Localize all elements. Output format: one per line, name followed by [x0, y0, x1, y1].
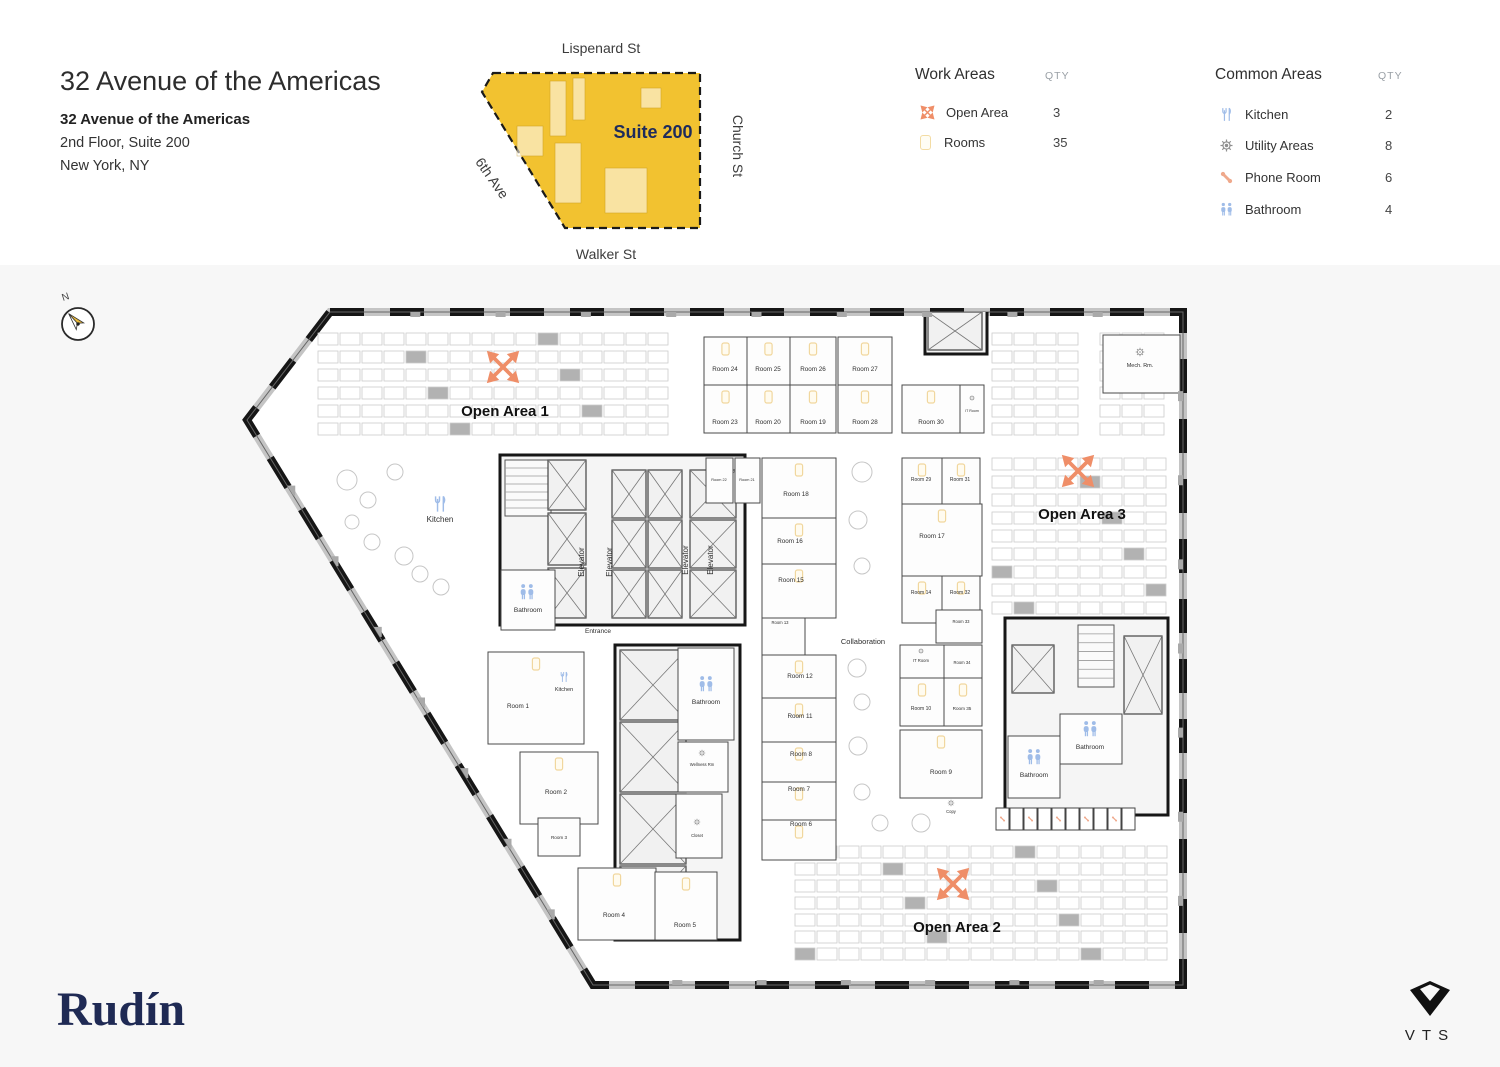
desk: [1015, 948, 1035, 960]
desk: [626, 423, 646, 435]
desk: [817, 914, 837, 926]
gear-icon: [694, 819, 700, 825]
vts-wordmark: VTS: [1398, 1027, 1462, 1044]
desk: [1059, 948, 1079, 960]
desk: [1059, 863, 1079, 875]
desk: [1037, 931, 1057, 943]
room-marker: [938, 510, 945, 522]
desk: [795, 948, 815, 960]
desk: [1036, 476, 1056, 488]
desk: [1124, 530, 1144, 542]
desk: [516, 387, 536, 399]
desk: [384, 423, 404, 435]
bathroom-icon: [1218, 201, 1235, 218]
room-marker: [795, 661, 802, 673]
desk: [340, 369, 360, 381]
legend-common-title: Common Areas: [1215, 66, 1322, 84]
plan-label: Room 21: [739, 478, 754, 482]
desk: [406, 405, 426, 417]
desk: [993, 880, 1013, 892]
desk: [318, 387, 338, 399]
desk: [1014, 512, 1034, 524]
room[interactable]: [676, 794, 722, 858]
room[interactable]: [678, 742, 728, 792]
desk: [1036, 458, 1056, 470]
plan-label: Room 29: [911, 477, 932, 483]
plan-label: Room 5: [674, 922, 697, 929]
room-marker: [861, 343, 868, 355]
desk: [318, 423, 338, 435]
desk: [1125, 914, 1145, 926]
desk: [971, 863, 991, 875]
desk: [1146, 584, 1166, 596]
desk: [604, 333, 624, 345]
room-marker: [722, 391, 729, 403]
plan-label: Room 35: [953, 706, 972, 711]
desk: [861, 931, 881, 943]
desk: [1103, 846, 1123, 858]
desk: [1058, 602, 1078, 614]
room-marker: [809, 391, 816, 403]
floorplan[interactable]: Room 24Room 25Room 26Room 23Room 20Room …: [235, 295, 1195, 995]
desk: [1014, 494, 1034, 506]
room-marker: [795, 464, 802, 476]
desk: [582, 387, 602, 399]
desk: [428, 369, 448, 381]
desk: [472, 333, 492, 345]
desk: [1036, 405, 1056, 417]
desk: [1147, 863, 1167, 875]
plan-label: Kitchen: [555, 687, 573, 693]
plan-label: Room 31: [950, 477, 971, 483]
desk: [861, 948, 881, 960]
desk: [340, 333, 360, 345]
phone-booth: [1122, 808, 1135, 830]
desk: [1058, 423, 1078, 435]
desk: [384, 387, 404, 399]
desk: [992, 584, 1012, 596]
desk: [384, 333, 404, 345]
desk: [1146, 548, 1166, 560]
desk: [1080, 584, 1100, 596]
desk: [861, 880, 881, 892]
desk: [1014, 566, 1034, 578]
desk: [362, 387, 382, 399]
gear-icon: [969, 395, 975, 401]
desk: [1147, 880, 1167, 892]
room[interactable]: [678, 648, 734, 740]
minimap-suite-shape[interactable]: [482, 73, 700, 228]
vts-logo: VTS: [1398, 980, 1462, 1044]
legend-common-areas: Common Areas QTY Kitchen 2 Utility Areas…: [1215, 66, 1435, 226]
desk: [839, 863, 859, 875]
table: [345, 515, 359, 529]
desk: [993, 897, 1013, 909]
desk: [626, 369, 646, 381]
desk: [905, 846, 925, 858]
room-marker: [918, 684, 925, 696]
desk: [560, 351, 580, 363]
desk: [1015, 863, 1035, 875]
room[interactable]: [1008, 736, 1060, 798]
desk: [992, 423, 1012, 435]
desk: [560, 369, 580, 381]
table: [852, 462, 872, 482]
legend-row-phone: Phone Room: [1218, 167, 1321, 187]
desk: [1014, 369, 1034, 381]
plan-label: Room 1: [507, 703, 530, 710]
phone-booth: [1038, 808, 1051, 830]
plan-label: Room 17: [919, 533, 945, 540]
desk: [406, 351, 426, 363]
desk: [1124, 602, 1144, 614]
desk: [1014, 530, 1034, 542]
desk: [1036, 602, 1056, 614]
desk: [1147, 914, 1167, 926]
desk: [384, 351, 404, 363]
desk: [318, 405, 338, 417]
desk: [1146, 494, 1166, 506]
plan-label: Room 23: [712, 419, 738, 426]
plan-label: Room 2: [545, 789, 568, 796]
plan-label: Room 24: [712, 366, 738, 373]
desk: [1125, 863, 1145, 875]
desk: [1058, 494, 1078, 506]
desk: [1103, 948, 1123, 960]
plan-label: Open Area 2: [913, 919, 1001, 936]
desk: [1059, 931, 1079, 943]
desk: [1014, 423, 1034, 435]
desk: [516, 369, 536, 381]
desk: [450, 333, 470, 345]
plan-label: Bathroom: [1076, 744, 1104, 751]
desk: [450, 423, 470, 435]
desk: [992, 512, 1012, 524]
vts-mark-icon: [1398, 980, 1462, 1018]
desk: [1124, 548, 1144, 560]
desk: [817, 880, 837, 892]
desk: [1081, 897, 1101, 909]
desk: [1124, 458, 1144, 470]
desk: [1125, 846, 1145, 858]
plan-label: Elevator: [605, 547, 614, 577]
desk: [905, 948, 925, 960]
desk: [1124, 584, 1144, 596]
plan-label: Room 33: [953, 619, 971, 624]
desk: [1081, 863, 1101, 875]
room-marker: [765, 391, 772, 403]
desk: [1102, 602, 1122, 614]
desk: [883, 880, 903, 892]
desk: [604, 387, 624, 399]
desk: [626, 405, 646, 417]
desk: [1058, 369, 1078, 381]
desk: [1125, 948, 1145, 960]
desk: [992, 333, 1012, 345]
suite-200-label: Suite 200: [588, 122, 718, 143]
desk: [817, 863, 837, 875]
plan-label: Room 30: [918, 419, 944, 426]
desk: [1014, 548, 1034, 560]
plan-label: Room 25: [755, 366, 781, 373]
desk: [406, 387, 426, 399]
desk: [1080, 548, 1100, 560]
room[interactable]: [501, 570, 555, 630]
desk: [1080, 494, 1100, 506]
plan-label: Closet: [691, 833, 704, 838]
desk: [406, 333, 426, 345]
plan-label: Room 14: [911, 590, 932, 596]
desk: [626, 333, 646, 345]
desk: [362, 423, 382, 435]
desk: [861, 897, 881, 909]
desk: [494, 423, 514, 435]
rooms-icon: [920, 135, 931, 150]
desk: [428, 405, 448, 417]
desk: [340, 351, 360, 363]
desk: [795, 931, 815, 943]
desk: [993, 863, 1013, 875]
desk: [1015, 880, 1035, 892]
desk: [1102, 584, 1122, 596]
open-area-icon: [919, 104, 936, 121]
desk: [604, 423, 624, 435]
plan-label: Room 11: [787, 713, 813, 720]
desk: [626, 351, 646, 363]
desk: [1058, 333, 1078, 345]
desk: [1059, 880, 1079, 892]
plan-label: Mech. Rm.: [1127, 363, 1154, 369]
plan-label: Room 7: [788, 786, 811, 793]
desk: [1037, 948, 1057, 960]
table: [412, 566, 428, 582]
minimap: Lispenard St Walker St Church St 6th Ave…: [455, 18, 767, 274]
phone-booth: [1094, 808, 1107, 830]
header: 32 Avenue of the Americas 32 Avenue of t…: [60, 66, 460, 174]
desk: [1015, 931, 1035, 943]
desk: [795, 863, 815, 875]
desk: [839, 897, 859, 909]
plan-label: Elevator: [577, 547, 586, 577]
plan-label: Room 3: [551, 835, 568, 840]
kitchen-icon: [1218, 106, 1235, 123]
legend-row-rooms: Rooms: [920, 132, 985, 152]
desk: [861, 914, 881, 926]
desk: [1036, 530, 1056, 542]
desk: [1125, 931, 1145, 943]
plan-label: Room 6: [790, 821, 813, 828]
desk: [992, 387, 1012, 399]
desk: [450, 369, 470, 381]
gear-icon: [1136, 348, 1145, 357]
desk: [1125, 897, 1145, 909]
desk: [516, 333, 536, 345]
desk: [1144, 405, 1164, 417]
utility-icon: [1218, 137, 1235, 154]
desk: [1122, 405, 1142, 417]
desk: [927, 880, 947, 892]
plan-label: Copy: [946, 809, 957, 814]
desk: [1059, 846, 1079, 858]
desk: [949, 846, 969, 858]
desk: [1081, 846, 1101, 858]
desk: [971, 880, 991, 892]
plan-label: Room 27: [852, 366, 878, 373]
plan-label: Room 10: [911, 706, 932, 712]
desk: [538, 369, 558, 381]
plan-label: IT Room: [965, 409, 979, 413]
desk: [582, 333, 602, 345]
desk: [1015, 914, 1035, 926]
desk: [582, 351, 602, 363]
desk: [839, 948, 859, 960]
phone-icon: [1218, 169, 1235, 186]
desk: [428, 423, 448, 435]
desk: [1036, 584, 1056, 596]
desk: [1036, 351, 1056, 363]
legend-work-title: Work Areas: [915, 66, 995, 84]
legend-rooms-qty: 35: [1053, 135, 1067, 150]
room[interactable]: [1060, 714, 1122, 764]
desk: [1124, 512, 1144, 524]
desk: [1102, 494, 1122, 506]
desk: [1102, 566, 1122, 578]
desk: [1037, 880, 1057, 892]
desk: [318, 333, 338, 345]
desk: [450, 387, 470, 399]
table: [872, 815, 888, 831]
desk: [1037, 846, 1057, 858]
room-marker: [532, 658, 539, 670]
street-walker: Walker St: [455, 246, 757, 262]
minimap-svg: [455, 18, 767, 274]
legend-common-qty-header: QTY: [1378, 70, 1403, 82]
table: [849, 737, 867, 755]
plan-label: Room 18: [783, 491, 809, 498]
legend-open-area-label: Open Area: [946, 105, 1008, 120]
desk: [648, 405, 668, 417]
desk: [1014, 602, 1034, 614]
plan-label: Room 16: [777, 538, 803, 545]
desk: [1146, 530, 1166, 542]
desk: [362, 369, 382, 381]
table: [395, 547, 413, 565]
desk: [861, 863, 881, 875]
desk: [340, 387, 360, 399]
desk: [1080, 566, 1100, 578]
desk: [905, 863, 925, 875]
legend-work-areas: Work Areas QTY Open Area 3 Rooms 35: [915, 66, 1115, 166]
legend-phone-label: Phone Room: [1245, 170, 1321, 185]
desk: [817, 931, 837, 943]
desk: [406, 423, 426, 435]
legend-work-qty-header: QTY: [1045, 70, 1070, 82]
desk: [992, 602, 1012, 614]
desk: [340, 423, 360, 435]
desk: [1014, 351, 1034, 363]
desk: [626, 387, 646, 399]
desk: [362, 333, 382, 345]
desk: [648, 351, 668, 363]
plan-label: Room 28: [852, 419, 878, 426]
desk: [450, 351, 470, 363]
desk: [1014, 584, 1034, 596]
plan-label: Open Area 1: [461, 403, 549, 420]
plan-label: Entrance: [585, 628, 611, 635]
desk: [318, 351, 338, 363]
desk: [560, 387, 580, 399]
table: [387, 464, 403, 480]
desk: [648, 387, 668, 399]
desk: [839, 880, 859, 892]
desk: [883, 931, 903, 943]
legend-utility-label: Utility Areas: [1245, 138, 1314, 153]
desk: [839, 931, 859, 943]
room-marker: [682, 878, 689, 890]
legend-kitchen-label: Kitchen: [1245, 107, 1288, 122]
desk: [1036, 387, 1056, 399]
plan-label: Room 13: [772, 620, 790, 625]
room-marker: [918, 464, 925, 476]
desk: [1080, 602, 1100, 614]
desk: [648, 333, 668, 345]
table: [848, 659, 866, 677]
plan-label: Room 4: [603, 912, 626, 919]
desk: [1080, 530, 1100, 542]
desk: [1081, 880, 1101, 892]
desk: [1124, 494, 1144, 506]
street-lispenard: Lispenard St: [455, 40, 747, 56]
desk: [1100, 405, 1120, 417]
desk: [1036, 333, 1056, 345]
table: [849, 511, 867, 529]
plan-label: Room 19: [800, 419, 826, 426]
table: [360, 492, 376, 508]
stairs: [1078, 625, 1114, 687]
desk: [560, 423, 580, 435]
desk: [538, 387, 558, 399]
city: New York, NY: [60, 158, 460, 174]
table: [854, 784, 870, 800]
plan-label: Room 12: [787, 673, 813, 680]
desk: [340, 405, 360, 417]
room[interactable]: [936, 610, 982, 643]
desk: [1014, 476, 1034, 488]
desk: [516, 351, 536, 363]
desk: [318, 369, 338, 381]
desk: [1146, 458, 1166, 470]
desk: [1014, 333, 1034, 345]
legend-row-utility: Utility Areas: [1218, 135, 1314, 155]
room-marker: [795, 524, 802, 536]
desk: [1014, 405, 1034, 417]
room-marker: [861, 391, 868, 403]
desk: [839, 846, 859, 858]
desk: [1058, 351, 1078, 363]
legend-open-area-qty: 3: [1053, 105, 1060, 120]
desk: [1102, 476, 1122, 488]
room-marker: [957, 464, 964, 476]
desk: [795, 897, 815, 909]
desk: [538, 423, 558, 435]
desk: [1014, 458, 1034, 470]
desk: [883, 863, 903, 875]
legend-rooms-label: Rooms: [944, 135, 985, 150]
desk: [1103, 914, 1123, 926]
room-marker: [927, 391, 934, 403]
desk: [560, 405, 580, 417]
desk: [1081, 948, 1101, 960]
